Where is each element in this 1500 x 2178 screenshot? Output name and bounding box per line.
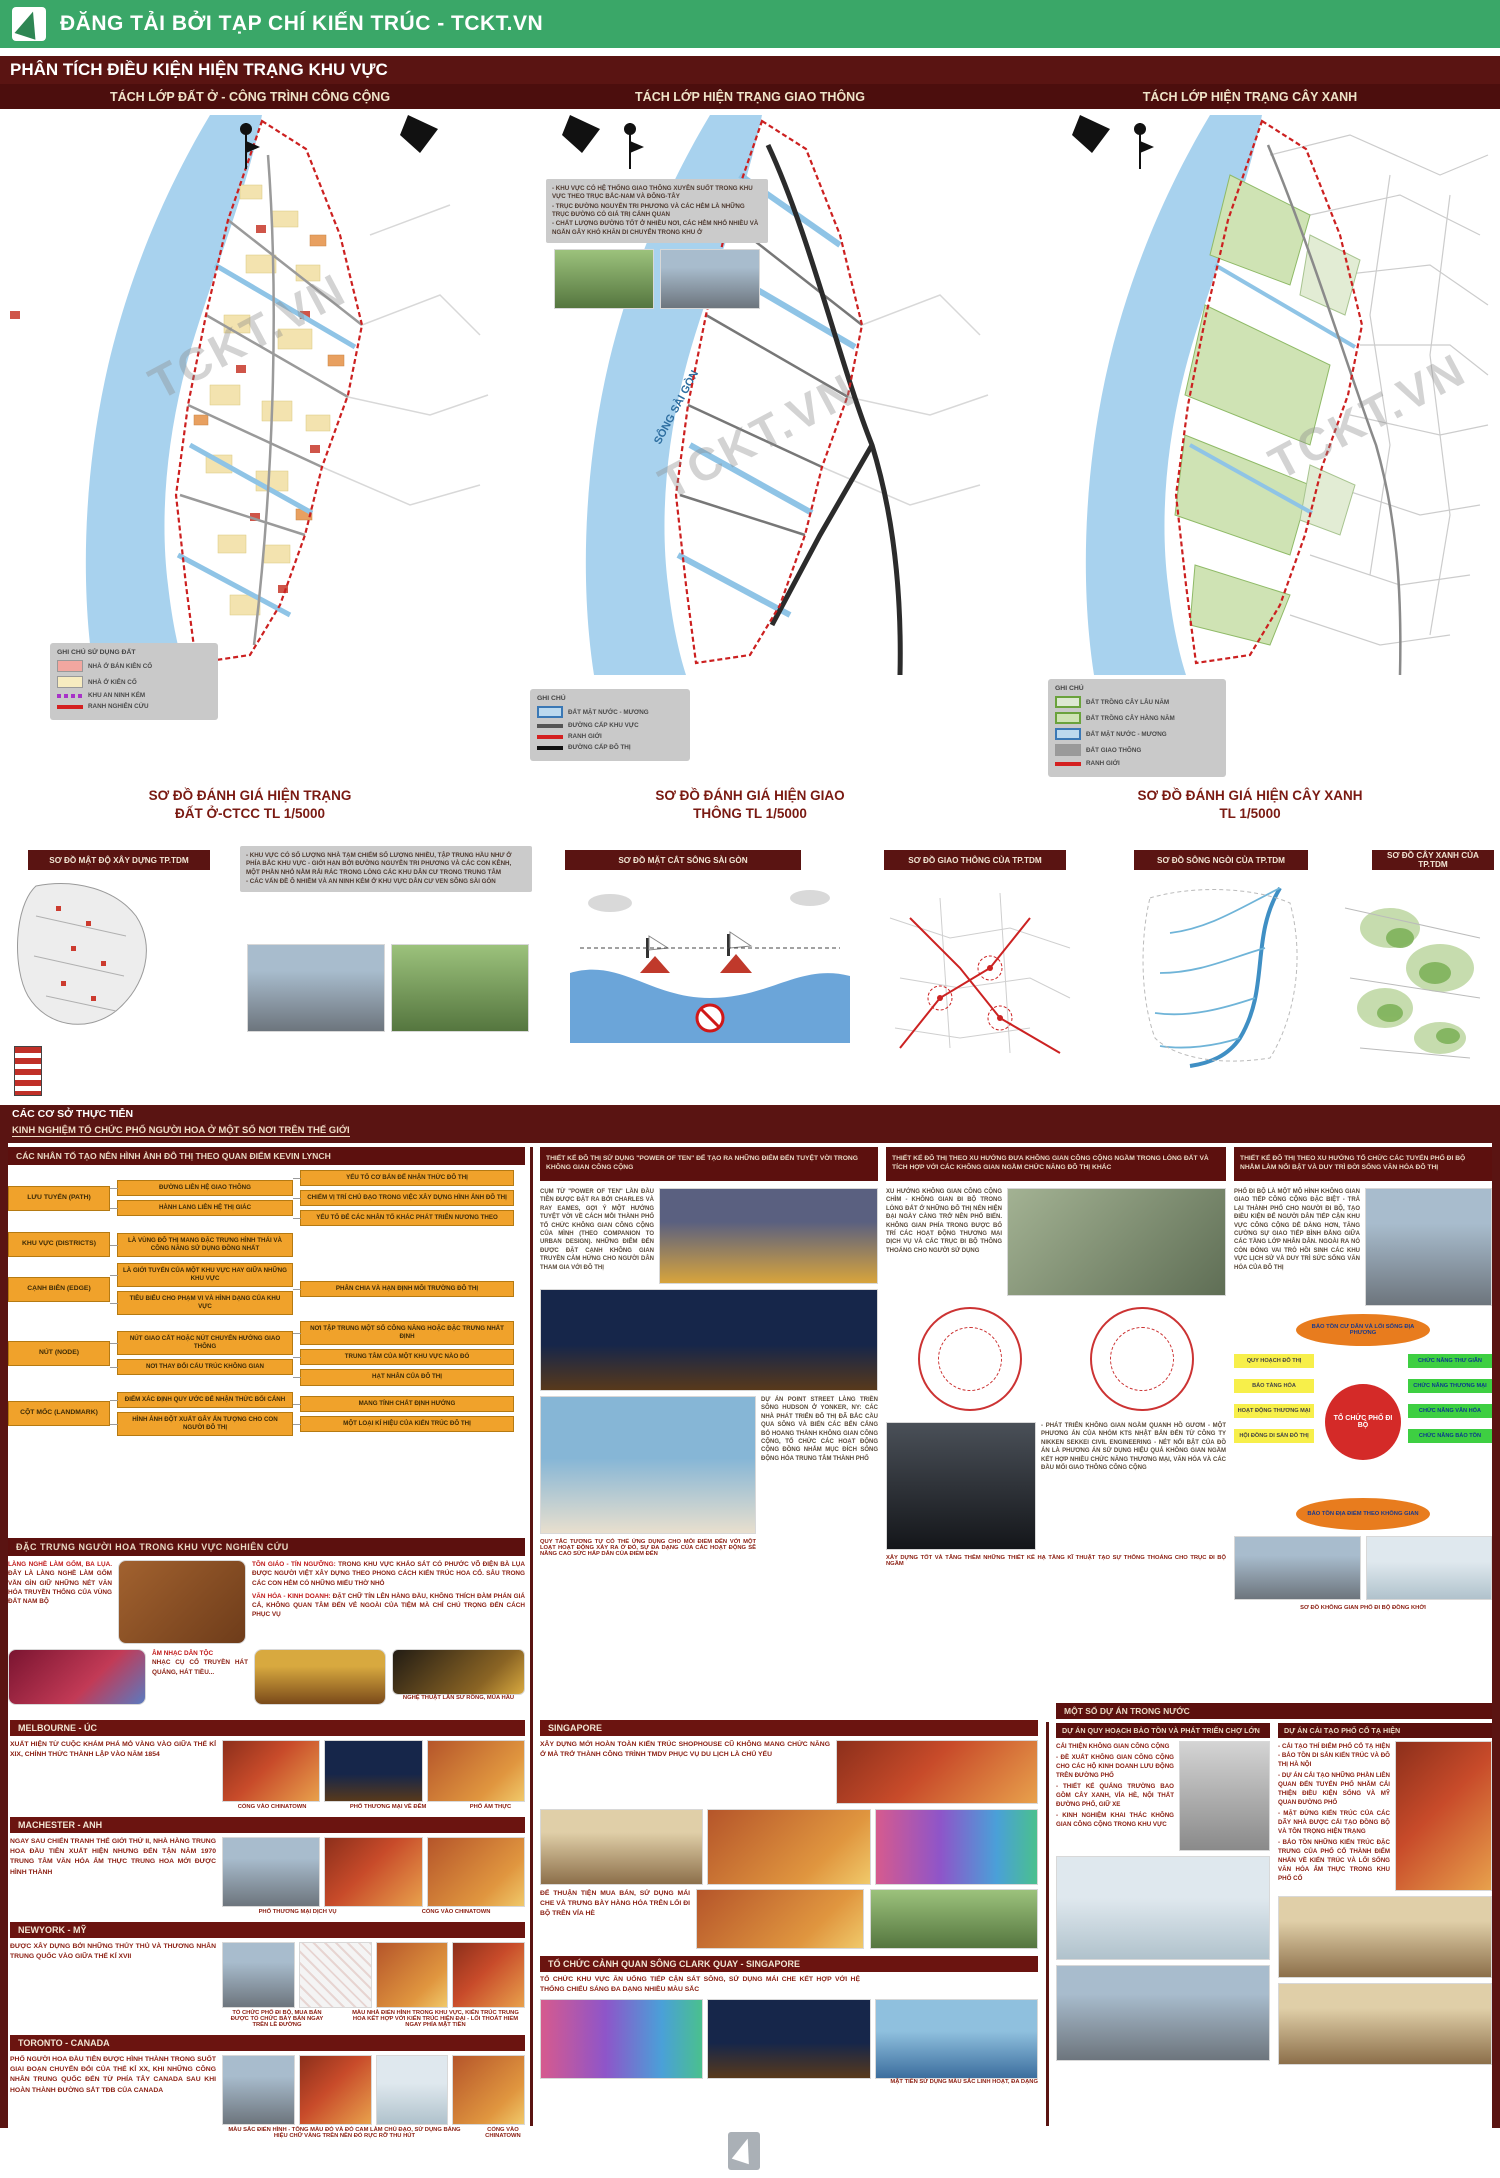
photo-marina [540, 1396, 756, 1534]
radial-right-boxes: CHỨC NĂNG THƯ GIÃNCHỨC NĂNG THƯƠNG MẠICH… [1408, 1354, 1492, 1443]
manchester-captions: PHỐ THƯƠNG MẠI DỊCH VỤCỔNG VÀO CHINATOWN [224, 1909, 525, 1915]
footer-logo [728, 2132, 760, 2170]
city-toronto-header: TORONTO - CANADA [10, 2035, 525, 2051]
trend3-paragraph: PHỐ ĐI BỘ LÀ MỘT MÔ HÌNH KHÔNG GIAN GIAO… [1234, 1188, 1360, 1306]
lynch-row: KHU VỰC (DISTRICTS)LÀ VÙNG ĐÔ THỊ MANG Đ… [8, 1232, 525, 1257]
photo-cholon-street [1056, 1965, 1270, 2061]
city-manchester-header: MACHESTER - ANH [10, 1817, 525, 1833]
lynch-mid-box: NƠI THAY ĐỔI CẤU TRÚC KHÔNG GIAN [117, 1359, 293, 1375]
melbourne-captions: CỔNG VÀO CHINATOWNPHỐ THƯƠNG MẠI VỀ ĐÊMP… [224, 1804, 525, 1810]
divider [1046, 1722, 1049, 2126]
legend-swatch-icon [57, 705, 83, 709]
lynch-root-box: CỘT MỐC (LANDMARK) [8, 1401, 110, 1426]
practice-subtitle: KINH NGHIỆM TỔ CHỨC PHỐ NGƯỜI HOA Ở MỘT … [12, 1125, 350, 1137]
radial-bottom: BẢO TỒN ĐỊA ĐIỂM THEO KHÔNG GIAN [1296, 1498, 1430, 1530]
photo-pottery [118, 1560, 246, 1644]
clark-quay-header: TỔ CHỨC CẢNH QUAN SÔNG CLARK QUAY - SING… [540, 1956, 1038, 1972]
text-line: - CẢI TẠO THÍ ĐIỂM PHỐ CỔ TẠ HIỆN - BẢO … [1278, 1743, 1390, 1770]
hoa-religion: TÔN GIÁO - TÍN NGƯỠNG: TRONG KHU VỰC KHẢ… [252, 1560, 525, 1644]
photo-sg-chinatown [836, 1740, 1038, 1804]
photo-caption: PHỐ THƯƠNG MẠI VỀ ĐÊM [350, 1804, 426, 1810]
project-cholon-notes: CẢI THIỆN KHÔNG GIAN CÔNG CỘNG- ĐỀ XUẤT … [1056, 1741, 1174, 1851]
lynch-mid-box: NÚT GIAO CẮT HOẶC NÚT CHUYỂN HƯỚNG GIAO … [117, 1331, 293, 1355]
legend-label: ĐẤT TRỒNG CÂY HÀNG NĂM [1086, 715, 1175, 722]
world-cities-panel: MELBOURNE - ÚC XUẤT HIỆN TỪ CUỘC KHÁM PH… [10, 1720, 525, 2139]
traffic-photo-canal [554, 249, 654, 309]
photo-clark-night [707, 1999, 870, 2079]
city-melbourne-header: MELBOURNE - ÚC [10, 1720, 525, 1736]
legend-label: NHÀ Ở KIÊN CỐ [88, 679, 137, 686]
photo-walking-street [1234, 1536, 1361, 1600]
lynch-flowchart: LƯU TUYẾN (PATH)ĐƯỜNG LIÊN HỆ GIAO THÔNG… [8, 1170, 525, 1436]
rivers-sketch [1130, 878, 1315, 1068]
city-melbourne-text: XUẤT HIỆN TỪ CUỘC KHÁM PHÁ MỎ VÀNG VÀO G… [10, 1740, 216, 1802]
land-use-legend: GHI CHÚ SỬ DỤNG ĐẤT NHÀ Ở BÁN KIÊN CỐNHÀ… [50, 643, 218, 720]
text-line: - DỰ ÁN CẢI TẠO NHỮNG PHẦN LIÊN QUAN ĐẾN… [1278, 1772, 1390, 1808]
legend-label: KHU AN NINH KÉM [88, 692, 145, 699]
photo-caption: PHỐ ẨM THỰC [470, 1804, 512, 1810]
photo-shopping-street [222, 1837, 320, 1907]
legend-label: ĐẤT MẶT NƯỚC - MƯƠNG [568, 709, 649, 716]
traffic-legend: GHI CHÚ ĐẤT MẶT NƯỚC - MƯƠNGĐƯỜNG CẤP KH… [530, 689, 690, 761]
legend-swatch-icon [537, 706, 563, 718]
lynch-header: CÁC NHÂN TỐ TẠO NÊN HÌNH ẢNH ĐÔ THỊ THEO… [8, 1147, 525, 1165]
site-banner: ĐĂNG TẢI BỞI TẠP CHÍ KIẾN TRÚC - TCKT.VN [0, 0, 1500, 48]
photo-chinatown-gate [222, 1740, 320, 1802]
trend3-column: PHỐ ĐI BỘ LÀ MỘT MÔ HÌNH KHÔNG GIAN GIAO… [1234, 1188, 1492, 1611]
activity-wheel-icon [918, 1307, 1022, 1411]
diagram-box: CHỨC NĂNG VĂN HÓA [1408, 1404, 1492, 1418]
photo-clark-colorful [540, 1999, 703, 2079]
lynch-mid-box: LÀ GIỚI TUYẾN CỦA MỘT KHU VỰC HAY GIỮA N… [117, 1263, 293, 1287]
trend2-paragraph2: - PHÁT TRIỂN KHÔNG GIAN NGẦM QUANH HỒ GƯ… [1041, 1422, 1226, 1550]
legend-title: GHI CHÚ [537, 695, 683, 702]
photo-flinders-station [659, 1188, 878, 1284]
lynch-mid-box: ĐƯỜNG LIÊN HỆ GIAO THÔNG [117, 1180, 293, 1196]
diagram-box: CHỨC NĂNG THƯƠNG MẠI [1408, 1379, 1492, 1393]
text-line: - CÁC VẤN ĐỀ Ô NHIỄM VÀ AN NINH KÉM Ở KH… [246, 878, 526, 886]
layer-tabs: TÁCH LỚP ĐẤT Ở - CÔNG TRÌNH CÔNG CỘNG TÁ… [0, 84, 1500, 109]
photo-sg-hawker [696, 1889, 864, 1949]
lynch-leaf-box: NƠI TẬP TRUNG MỘT SỐ CÔNG NĂNG HOẶC ĐẶC … [300, 1321, 514, 1345]
toronto-photos [222, 2055, 525, 2125]
project-tahien-title: DỰ ÁN CẢI TẠO PHỐ CỔ TẠ HIỆN [1278, 1723, 1492, 1738]
hoa-craft: LÀNG NGHỀ LÀM GỐM, BA LỤA. ĐÂY LÀ LÀNG N… [8, 1560, 112, 1644]
legend-label: RANH NGHIÊN CỨU [88, 703, 149, 710]
photo-opera [8, 1649, 146, 1705]
lynch-mid-box: HÀNH LANG LIÊN HỆ THỊ GIÁC [117, 1200, 293, 1216]
text-line: - MẶT ĐỨNG KIẾN TRÚC CỦA CÁC DÃY NHÀ ĐƯỢ… [1278, 1810, 1390, 1837]
trend2-header: THIẾT KẾ ĐÔ THỊ THEO XU HƯỚNG ĐƯA KHÔNG … [886, 1147, 1226, 1181]
manchester-photos [222, 1837, 525, 1907]
legend-swatch-icon [1055, 696, 1081, 708]
legend-label: RANH GIỚI [1086, 760, 1120, 767]
singapore-panel: SINGAPORE XÂY DỰNG MỚI HOÀN TOÀN KIẾN TR… [540, 1720, 1038, 2085]
diagram-box: CHỨC NĂNG THƯ GIÃN [1408, 1354, 1492, 1368]
lynch-mid-box: LÀ VÙNG ĐÔ THỊ MANG ĐẶC TRƯNG HÌNH THÁI … [117, 1233, 293, 1257]
photo-aerial-park [1007, 1188, 1226, 1296]
lynch-leaf-box: HẠT NHÂN CỦA ĐÔ THỊ [300, 1369, 514, 1385]
legend-label: ĐƯỜNG CẤP ĐÔ THỊ [568, 744, 631, 751]
lynch-mid-box: HÌNH ẢNH ĐỘT XUẤT GÂY ẤN TƯỢNG CHO CON N… [117, 1412, 293, 1436]
lynch-leaf-box: CHIẾM VỊ TRÍ CHỦ ĐẠO TRONG VIỆC XÂY DỰNG… [300, 1190, 514, 1206]
legend-item: RANH NGHIÊN CỨU [57, 703, 211, 710]
photo-underground-escalator [886, 1422, 1036, 1550]
photo-pedestrian-street [1365, 1188, 1492, 1306]
diagram-section-title: SƠ ĐỒ MẶT CẮT SÔNG SÀI GÒN [565, 850, 801, 870]
photo-toronto-street [222, 2055, 295, 2125]
photo-food-street [427, 1740, 525, 1802]
lynch-leaf-box: TRUNG TÂM CỦA MỘT KHU VỰC NÀO ĐÓ [300, 1349, 514, 1365]
photo-lion-dance [392, 1649, 525, 1695]
legend-label: RANH GIỚI [568, 733, 602, 740]
legend-item: ĐẤT TRỒNG CÂY HÀNG NĂM [1055, 712, 1219, 724]
page-title: PHÂN TÍCH ĐIỀU KIỆN HIỆN TRẠNG KHU VỰC [0, 56, 1500, 84]
legend-swatch-icon [57, 694, 83, 698]
lynch-panel: CÁC NHÂN TỐ TẠO NÊN HÌNH ẢNH ĐÔ THỊ THEO… [8, 1147, 525, 1442]
singapore-header: SINGAPORE [540, 1720, 1038, 1736]
frame-right [1492, 1105, 1500, 2128]
greenery-map [1010, 115, 1490, 675]
photo-ny-map [299, 1942, 372, 2008]
domestic-header: MỘT SỐ DỰ ÁN TRONG NƯỚC [1056, 1703, 1492, 1719]
photo-clark-river [875, 1999, 1038, 2079]
diagram-green-title: SƠ ĐỒ CÂY XANH CỦA TP.TDM [1372, 850, 1494, 870]
photo-sg-stalls [870, 1889, 1038, 1949]
legend-label: ĐẤT MẶT NƯỚC - MƯƠNG [1086, 731, 1167, 738]
city-toronto-text: PHỐ NGƯỜI HOA ĐẦU TIÊN ĐƯỢC HÌNH THÀNH T… [10, 2055, 216, 2125]
project-cholon-title: DỰ ÁN QUY HOẠCH BẢO TỒN VÀ PHÁT TRIỂN CH… [1056, 1723, 1270, 1738]
tab-traffic: TÁCH LỚP HIỆN TRẠNG GIAO THÔNG [500, 84, 1000, 109]
traffic-photo-road [660, 249, 760, 309]
lynch-leaf-box: MỘT LOẠI KÍ HIỆU CỦA KIẾN TRÚC ĐÔ THỊ [300, 1416, 514, 1432]
text-line: - KHU VỰC CÓ SỐ LƯỢNG NHÀ TẠM CHIẾM SỐ L… [246, 852, 526, 877]
photo-shophouse [540, 1809, 703, 1885]
legend-item: ĐẤT GIAO THÔNG [1055, 744, 1219, 756]
photo-chinatown-gate [324, 1837, 422, 1907]
project-cholon: DỰ ÁN QUY HOẠCH BẢO TỒN VÀ PHÁT TRIỂN CH… [1056, 1723, 1270, 2065]
photo-caption: MÀU SẮC ĐIỂN HÌNH - TÔNG MÀU ĐỎ VÀ ĐỎ CA… [224, 2127, 465, 2139]
land-use-map [10, 115, 490, 675]
hoa-music: ÂM NHẠC DÂN TỘCNHẠC CỤ CỔ TRUYỀN HÁT QUẢ… [152, 1649, 248, 1705]
diagram-transport-title: SƠ ĐỒ GIAO THÔNG CỦA TP.TDM [884, 850, 1066, 870]
legend-swatch-icon [57, 676, 83, 688]
legend-item: NHÀ Ở BÁN KIÊN CỐ [57, 660, 211, 672]
photo-tahien-houses [1278, 1983, 1492, 2065]
trend2-paragraph: XU HƯỚNG KHÔNG GIAN CÔNG CỘNG CHÌM - KHÔ… [886, 1188, 1002, 1296]
lynch-row: CỘT MỐC (LANDMARK)ĐIỂM XÁC ĐỊNH QUY ƯỚC … [8, 1392, 525, 1436]
photo-tahien-facade [1278, 1896, 1492, 1978]
photo-cholon-render [1056, 1856, 1270, 1960]
photo-sg-street [875, 1809, 1038, 1885]
text-line: - ĐỀ XUẤT KHÔNG GIAN CÔNG CỘNG CHO CÁC H… [1056, 1754, 1174, 1781]
photo-tahien-street [1395, 1741, 1492, 1891]
photo-night-waterfront [540, 1289, 878, 1391]
diagram-box: HOẠT ĐỘNG THƯƠNG MẠI [1234, 1404, 1314, 1418]
text-line: - TRỤC ĐƯỜNG NGUYỄN TRI PHƯƠNG VÀ CÁC HẺ… [552, 203, 762, 220]
city-newyork-header: NEWYORK - MỸ [10, 1922, 525, 1938]
legend-swatch-icon [1055, 728, 1081, 740]
legend-label: ĐẤT TRỒNG CÂY LÂU NĂM [1086, 699, 1169, 706]
text-line: CẢI THIỆN KHÔNG GIAN CÔNG CỘNG [1056, 1743, 1174, 1752]
trend1-paragraph2: DỰ ÁN POINT STREET LÀNG TRIỀN SÔNG HUDSO… [761, 1396, 878, 1534]
lynch-root-box: LƯU TUYẾN (PATH) [8, 1186, 110, 1211]
clark-quay-caption: MẶT TIỀN SỬ DỤNG MÀU SẮC LINH HOẠT, ĐA D… [540, 2079, 1038, 2085]
trend3-caption: SƠ ĐỒ KHÔNG GIAN PHỐ ĐI BỘ ĐỒNG KHỞI [1234, 1605, 1492, 1611]
lynch-leaf-box: PHÂN CHIA VÀ HẠN ĐỊNH MÔI TRƯỜNG ĐÔ THỊ [300, 1281, 514, 1297]
toronto-captions: MÀU SẮC ĐIỂN HÌNH - TÔNG MÀU ĐỎ VÀ ĐỎ CA… [224, 2127, 525, 2139]
lynch-mid-box: ĐIỂM XÁC ĐỊNH QUY ƯỚC ĐỂ NHẬN THỨC BỐI C… [117, 1392, 293, 1408]
diagram-density-title: SƠ ĐỒ MẬT ĐỘ XÂY DỰNG TP.TDM [28, 850, 210, 870]
transport-sketch [880, 878, 1080, 1068]
lynch-root-box: KHU VỰC (DISTRICTS) [8, 1232, 110, 1257]
map-traffic: SÔNG SÀI GÒN [510, 109, 990, 845]
legend-item: ĐẤT MẶT NƯỚC - MƯƠNG [1055, 728, 1219, 740]
photo-caption: PHỐ THƯƠNG MẠI DỊCH VỤ [259, 1909, 337, 1915]
lynch-leaf-box: YẾU TỐ ĐỂ CÁC NHÂN TỐ KHÁC PHÁT TRIỂN NƯ… [300, 1210, 514, 1226]
project-tahien-notes: - CẢI TẠO THÍ ĐIỂM PHỐ CỔ TẠ HIỆN - BẢO … [1278, 1741, 1390, 1891]
city-newyork-text: ĐƯỢC XÂY DỰNG BỞI NHỮNG THỦY THỦ VÀ THƯƠ… [10, 1942, 216, 2008]
singapore-photos [540, 1809, 1038, 1885]
trend1-paragraph: CỤM TỪ "POWER OF TEN" LẦN ĐẦU TIÊN ĐƯỢC … [540, 1188, 654, 1284]
text-line: - KINH NGHIỆM KHAI THÁC KHÔNG GIAN CÔNG … [1056, 1812, 1174, 1830]
photo-toronto-shops [299, 2055, 372, 2125]
activity-wheel-icon [1090, 1307, 1194, 1411]
legend-label: ĐẤT GIAO THÔNG [1086, 747, 1141, 754]
photo-caption: CỔNG VÀO CHINATOWN [481, 2127, 525, 2139]
map-greenery: TCKT.VN GHI CHÚ ĐẤT TRỒNG CÂY LÂU NĂMĐẤT… [1010, 109, 1490, 845]
singapore-text: XÂY DỰNG MỚI HOÀN TOÀN KIẾN TRÚC SHOPHOU… [540, 1740, 830, 1804]
trend2-caption: XÂY DỰNG TỐT VÀ TĂNG THÊM NHỮNG THIẾT KẾ… [886, 1555, 1226, 1567]
photo-ny-facade [452, 1942, 525, 2008]
density-photo-riverside [391, 944, 529, 1032]
land-use-caption: SƠ ĐỒ ĐÁNH GIÁ HIỆN TRẠNG ĐẤT Ở-CTCC TL … [10, 787, 490, 823]
legend-item: RANH GIỚI [1055, 760, 1219, 767]
density-bar-chart [14, 1046, 42, 1096]
river-section-sketch [560, 878, 860, 1058]
legend-swatch-icon [57, 660, 83, 672]
frame-left [0, 1105, 8, 2128]
project-tahien: DỰ ÁN CẢI TẠO PHỐ CỔ TẠ HIỆN - CẢI TẠO T… [1278, 1723, 1492, 2065]
kite-shape [562, 115, 600, 153]
photo-temple [254, 1649, 386, 1705]
legend-swatch-icon [537, 724, 563, 728]
lynch-leaf-box: YẾU TỐ CƠ BẢN ĐỂ NHẬN THỨC ĐÔ THỊ [300, 1170, 514, 1186]
greenery-sketch [1330, 878, 1495, 1068]
lynch-row: CẠNH BIÊN (EDGE)LÀ GIỚI TUYẾN CỦA MỘT KH… [8, 1263, 525, 1315]
maps-band: TCKT.VN GHI CHÚ SỬ DỤNG ĐẤT NHÀ Ở BÁN KI… [0, 109, 1500, 845]
hoa-panel: ĐẶC TRƯNG NGƯỜI HOA TRONG KHU VỰC NGHIÊN… [8, 1538, 525, 1710]
diagram-box: HỘI ĐỒNG DI SẢN ĐÔ THỊ [1234, 1429, 1314, 1443]
trend1-column: CỤM TỪ "POWER OF TEN" LẦN ĐẦU TIÊN ĐƯỢC … [540, 1188, 878, 1557]
legend-swatch-icon [537, 746, 563, 750]
photo-caption: MÀU NHÀ ĐIỂN HÌNH TRONG KHU VỰC, KIẾN TR… [346, 2010, 525, 2028]
lynch-root-box: NÚT (NODE) [8, 1341, 110, 1366]
diagram-box: CHỨC NĂNG BẢO TỒN [1408, 1429, 1492, 1443]
greenery-legend: GHI CHÚ ĐẤT TRỒNG CÂY LÂU NĂMĐẤT TRỒNG C… [1048, 679, 1226, 777]
legend-item: ĐẤT MẶT NƯỚC - MƯƠNG [537, 706, 683, 718]
diagram-box: BẢO TÀNG HÓA [1234, 1379, 1314, 1393]
photo-cholon-bw [1179, 1741, 1270, 1851]
legend-swatch-icon [537, 735, 563, 739]
poster: ĐĂNG TẢI BỞI TẠP CHÍ KIẾN TRÚC - TCKT.VN… [0, 0, 1500, 2178]
tab-greenery: TÁCH LỚP HIỆN TRẠNG CÂY XANH [1000, 84, 1500, 109]
tab-land-use: TÁCH LỚP ĐẤT Ở - CÔNG TRÌNH CÔNG CỘNG [0, 84, 500, 109]
photo-street-render [1366, 1536, 1493, 1600]
radial-center: TỔ CHỨC PHỐ ĐI BỘ [1325, 1384, 1401, 1460]
clark-quay-text: TỔ CHỨC KHU VỰC ĂN UỐNG TIẾP CẬN SÁT SÔN… [540, 1975, 860, 1995]
melbourne-photos [222, 1740, 525, 1802]
lynch-row: NÚT (NODE)NÚT GIAO CẮT HOẶC NÚT CHUYỂN H… [8, 1321, 525, 1385]
circle-diagrams [886, 1301, 1226, 1417]
photo-lantern-street [427, 1837, 525, 1907]
photo-caption: CỔNG VÀO CHINATOWN [422, 1909, 491, 1915]
photo-caption: CỔNG VÀO CHINATOWN [238, 1804, 307, 1810]
photo-night-street [324, 1740, 422, 1802]
text-line: - THIẾT KẾ QUẢNG TRƯỜNG BAO GỒM CÂY XANH… [1056, 1783, 1174, 1810]
density-map-sketch [6, 876, 166, 1041]
clark-quay-photos [540, 1999, 1038, 2079]
legend-label: NHÀ Ở BÁN KIÊN CỐ [88, 663, 152, 670]
diagram-rivers-title: SƠ ĐỒ SÔNG NGÒI CỦA TP.TDM [1134, 850, 1308, 870]
radial-top: BẢO TỒN CƯ DÂN VÀ LỐI SỐNG ĐỊA PHƯƠNG [1296, 1314, 1430, 1346]
domestic-panel: MỘT SỐ DỰ ÁN TRONG NƯỚC DỰ ÁN QUY HOẠCH … [1056, 1703, 1492, 2065]
legend-item: ĐẤT TRỒNG CÂY LÂU NĂM [1055, 696, 1219, 708]
legend-swatch-icon [1055, 744, 1081, 756]
newyork-photos [222, 1942, 525, 2008]
trend2-column: XU HƯỚNG KHÔNG GIAN CÔNG CỘNG CHÌM - KHÔ… [886, 1188, 1226, 1567]
legend-item: RANH GIỚI [537, 733, 683, 740]
photo-toronto-view [376, 2055, 449, 2125]
tckt-logo-icon [12, 7, 46, 41]
trend1-header: THIẾT KẾ ĐÔ THỊ SỬ DỤNG "POWER OF TEN" Đ… [540, 1147, 878, 1181]
legend-item: KHU AN NINH KÉM [57, 692, 211, 699]
legend-swatch-icon [1055, 762, 1081, 766]
legend-swatch-icon [1055, 712, 1081, 724]
radial-left-boxes: QUY HOẠCH ĐÔ THỊBẢO TÀNG HÓAHOẠT ĐỘNG TH… [1234, 1354, 1314, 1443]
practice-band: CÁC CƠ SỞ THỰC TIỄN KINH NGHIỆM TỔ CHỨC … [0, 1105, 1500, 1143]
banner-text: ĐĂNG TẢI BỞI TẠP CHÍ KIẾN TRÚC - TCKT.VN [60, 12, 543, 36]
kite-shape [1072, 115, 1110, 153]
text-line: - BẢO TỒN NHỮNG KIẾN TRÚC ĐẶC TRƯNG CỦA … [1278, 1839, 1390, 1884]
north-arrow-icon [624, 123, 644, 169]
photo-ny-market [376, 1942, 449, 2008]
map-land-use: TCKT.VN GHI CHÚ SỬ DỤNG ĐẤT NHÀ Ở BÁN KI… [10, 109, 490, 845]
north-arrow-icon [1134, 123, 1154, 169]
divider [530, 1147, 533, 2126]
greenery-caption: SƠ ĐỒ ĐÁNH GIÁ HIỆN CÂY XANH TL 1/5000 [1010, 787, 1490, 823]
photo-caption: TỔ CHỨC PHỐ ĐI BỘ, MUA BÁN ĐƯỢC TỔ CHỨC … [224, 2010, 330, 2028]
legend-item: ĐƯỜNG CẤP ĐÔ THỊ [537, 744, 683, 751]
text-line: - CHẤT LƯỢNG ĐƯỜNG TỐT Ở NHIỀU NƠI, CÁC … [552, 220, 762, 237]
lynch-root-box: CẠNH BIÊN (EDGE) [8, 1277, 110, 1302]
legend-label: ĐƯỜNG CẤP KHU VỰC [568, 722, 639, 729]
hoa-header: ĐẶC TRƯNG NGƯỜI HOA TRONG KHU VỰC NGHIÊN… [8, 1538, 525, 1556]
lion-caption: NGHỆ THUẬT LÂN SƯ RỒNG, MÚA HẦU [392, 1695, 525, 1701]
newyork-captions: TỔ CHỨC PHỐ ĐI BỘ, MUA BÁN ĐƯỢC TỔ CHỨC … [224, 2010, 525, 2028]
photo-sg-market [707, 1809, 870, 1885]
kite-shape [400, 115, 438, 153]
traffic-notes: - KHU VỰC CÓ HỆ THỐNG GIAO THÔNG XUYÊN S… [546, 179, 768, 243]
legend-title: GHI CHÚ SỬ DỤNG ĐẤT [57, 649, 211, 656]
photo-ny-street [222, 1942, 295, 2008]
pedestrian-street-diagram: BẢO TỒN CƯ DÂN VÀ LỐI SỐNG ĐỊA PHƯƠNG BẢ… [1234, 1314, 1492, 1530]
practice-title: CÁC CƠ SỞ THỰC TIỄN [12, 1108, 1488, 1120]
legend-item: ĐƯỜNG CẤP KHU VỰC [537, 722, 683, 729]
legend-title: GHI CHÚ [1055, 685, 1219, 692]
density-photo-street [247, 944, 385, 1032]
trend1-caption: QUY TẮC TƯƠNG TỰ CÓ THỂ ỨNG DỤNG CHO MỖI… [540, 1539, 756, 1557]
lynch-row: LƯU TUYẾN (PATH)ĐƯỜNG LIÊN HỆ GIAO THÔNG… [8, 1170, 525, 1226]
lynch-mid-box: TIÊU BIỂU CHO PHẠM VI VÀ HÌNH DẠNG CỦA K… [117, 1291, 293, 1315]
diagram-box: QUY HOẠCH ĐÔ THỊ [1234, 1354, 1314, 1368]
trend3-header: THIẾT KẾ ĐÔ THỊ THEO XU HƯỚNG TỔ CHỨC CÁ… [1234, 1147, 1492, 1181]
traffic-caption: SƠ ĐỒ ĐÁNH GIÁ HIỆN GIAO THÔNG TL 1/5000 [510, 787, 990, 823]
legend-item: NHÀ Ở KIÊN CỐ [57, 676, 211, 688]
text-line: - KHU VỰC CÓ HỆ THỐNG GIAO THÔNG XUYÊN S… [552, 185, 762, 202]
city-manchester-text: NGAY SAU CHIẾN TRANH THẾ GIỚI THỨ II, NH… [10, 1837, 216, 1907]
density-notes: - KHU VỰC CÓ SỐ LƯỢNG NHÀ TẠM CHIẾM SỐ L… [240, 846, 532, 892]
singapore-text2: ĐỂ THUẬN TIỆN MUA BÁN, SỬ DỤNG MÁI CHE V… [540, 1889, 690, 1949]
lynch-leaf-box: MANG TÍNH CHẤT ĐỊNH HƯỚNG [300, 1396, 514, 1412]
photo-toronto-gate [452, 2055, 525, 2125]
